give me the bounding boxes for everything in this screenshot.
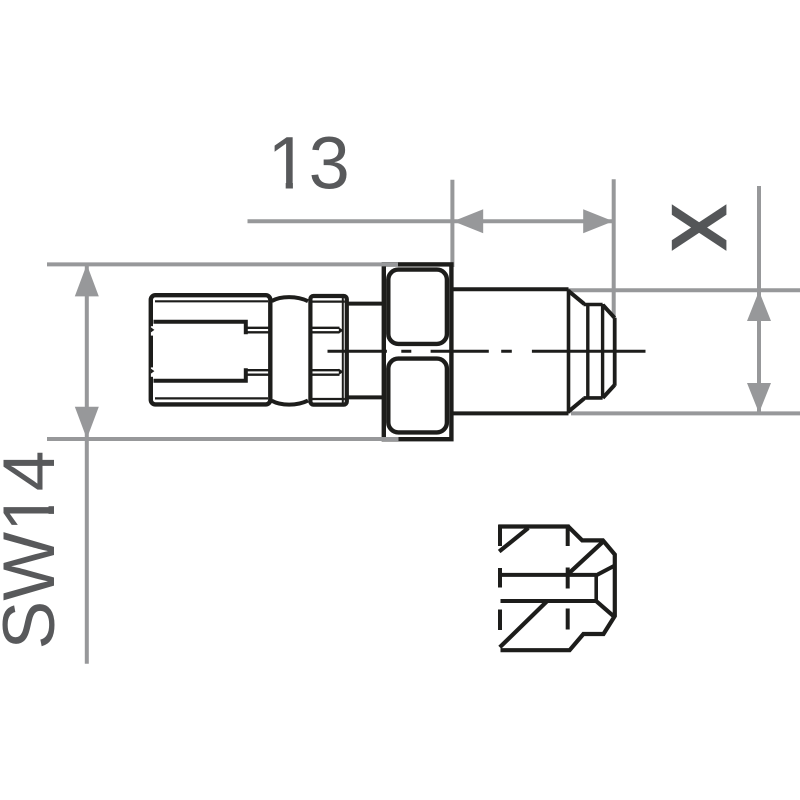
svg-text:13: 13 [268,121,350,204]
svg-text:SW14: SW14 [0,451,70,650]
